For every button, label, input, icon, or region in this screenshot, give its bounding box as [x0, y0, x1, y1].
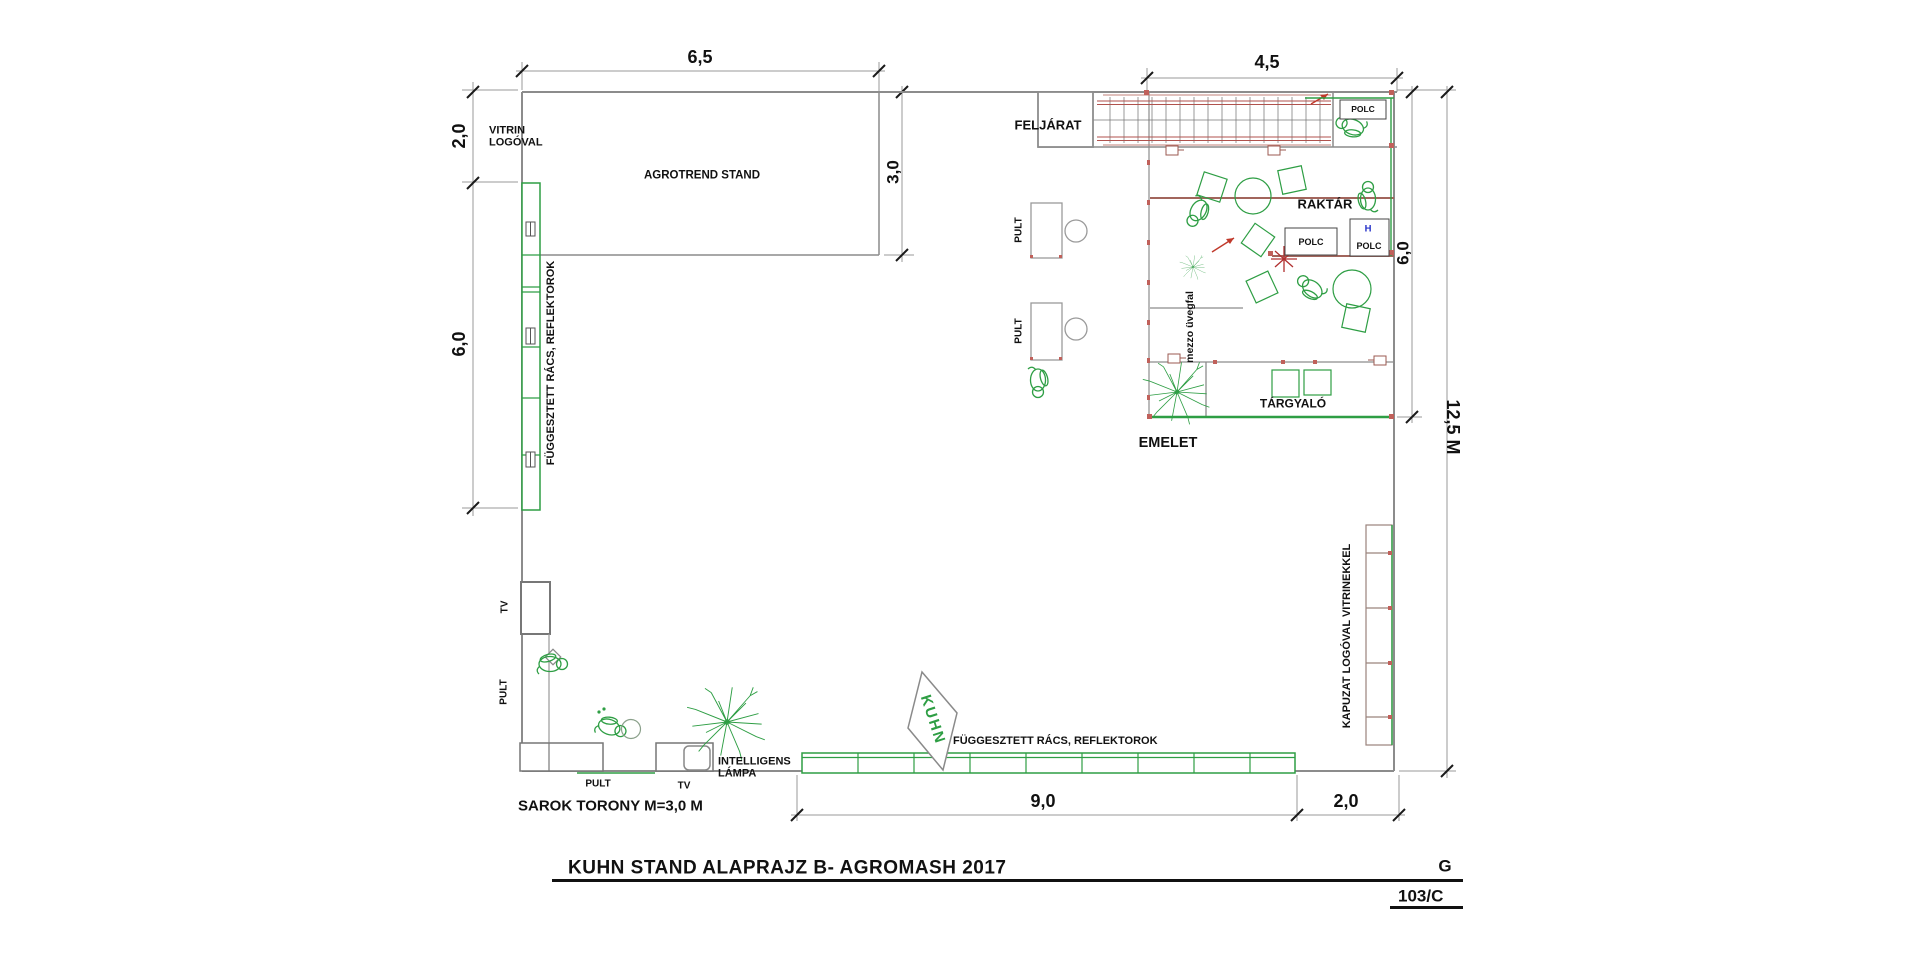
floor-plan-linework	[0, 0, 1920, 980]
plants	[687, 255, 1209, 759]
label-tv-left: TV	[499, 601, 510, 614]
label-fuggesztett-bottom: FÜGGESZTETT RÁCS, REFLEKTOROK	[953, 735, 1158, 747]
label-pult-upper-1: PULT	[1013, 217, 1024, 242]
dim-top-width: 6,5	[687, 47, 712, 67]
label-pult-bottom: PULT	[585, 778, 610, 789]
label-fuggesztett-left: FÜGGESZTETT RÁCS, REFLEKTOROK	[545, 261, 557, 466]
label-polc-left: POLC	[1298, 237, 1323, 247]
dim-bottom-width: 9,0	[1030, 791, 1055, 811]
label-feljarat: FELJÁRAT	[1015, 119, 1082, 134]
sarok-torony-counters	[520, 582, 713, 771]
people-figures	[537, 112, 1378, 743]
sheet-letter: G	[1438, 856, 1451, 875]
dim-total-depth: 12,5 M	[1443, 399, 1463, 454]
label-pult-left: PULT	[498, 679, 509, 704]
dim-emelet-depth: 6,0	[1393, 241, 1412, 265]
bottom-vitrin-strip	[802, 753, 1295, 773]
label-mezzo-uvegfal: mezzo üvegfal	[1185, 291, 1197, 363]
sheet-code-underline	[1390, 906, 1463, 909]
polc-boxes	[1285, 100, 1389, 256]
label-sarok-torony: SAROK TORONY M=3,0 M	[518, 799, 703, 816]
label-vitrin-logoval: VITRIN LOGÓVAL	[489, 125, 543, 150]
label-polc-right: POLC	[1356, 241, 1381, 251]
label-polc-h-mark: H	[1365, 225, 1372, 236]
drawing-title: KUHN STAND ALAPRAJZ B- AGROMASH 2017	[568, 857, 1007, 878]
label-kapuzat: KAPUZAT LOGÓVAL VITRINEKKEL	[1341, 544, 1353, 729]
dim-upper-right-width: 4,5	[1254, 52, 1279, 72]
dim-left-mid: 6,0	[449, 331, 469, 356]
floor-plan-canvas: 6,5 4,5 VITRIN LOGÓVAL 2,0 AGROTREND STA…	[0, 0, 1920, 980]
corner-green-lines	[577, 98, 1394, 773]
left-vitrin-strip	[522, 183, 540, 510]
label-intelligens-lampa: INTELLIGENS LÁMPA	[718, 756, 791, 781]
label-targyalo: TÁRGYALÓ	[1260, 397, 1326, 410]
walls	[522, 92, 1397, 771]
right-vitrin-column	[1366, 525, 1392, 745]
label-pult-upper-2: PULT	[1013, 318, 1024, 343]
dimension-lines	[462, 62, 1456, 821]
label-tv-bottom: TV	[678, 780, 691, 791]
dimension-ticks	[467, 65, 1453, 821]
pult-tables	[1030, 203, 1087, 360]
label-emelet: EMELET	[1139, 435, 1198, 451]
sheet-code: 103/C	[1398, 886, 1443, 905]
title-underline	[552, 879, 1463, 882]
dim-bottom-right-width: 2,0	[1333, 791, 1358, 811]
label-raktar: RAKTÁR	[1298, 198, 1353, 213]
stairs	[1090, 94, 1332, 145]
dim-agrotrend-depth: 3,0	[883, 160, 902, 184]
dim-left-upper: 2,0	[449, 123, 469, 148]
label-polc-top-right: POLC	[1351, 105, 1375, 115]
label-agrotrend-stand: AGROTREND STAND	[644, 170, 760, 183]
